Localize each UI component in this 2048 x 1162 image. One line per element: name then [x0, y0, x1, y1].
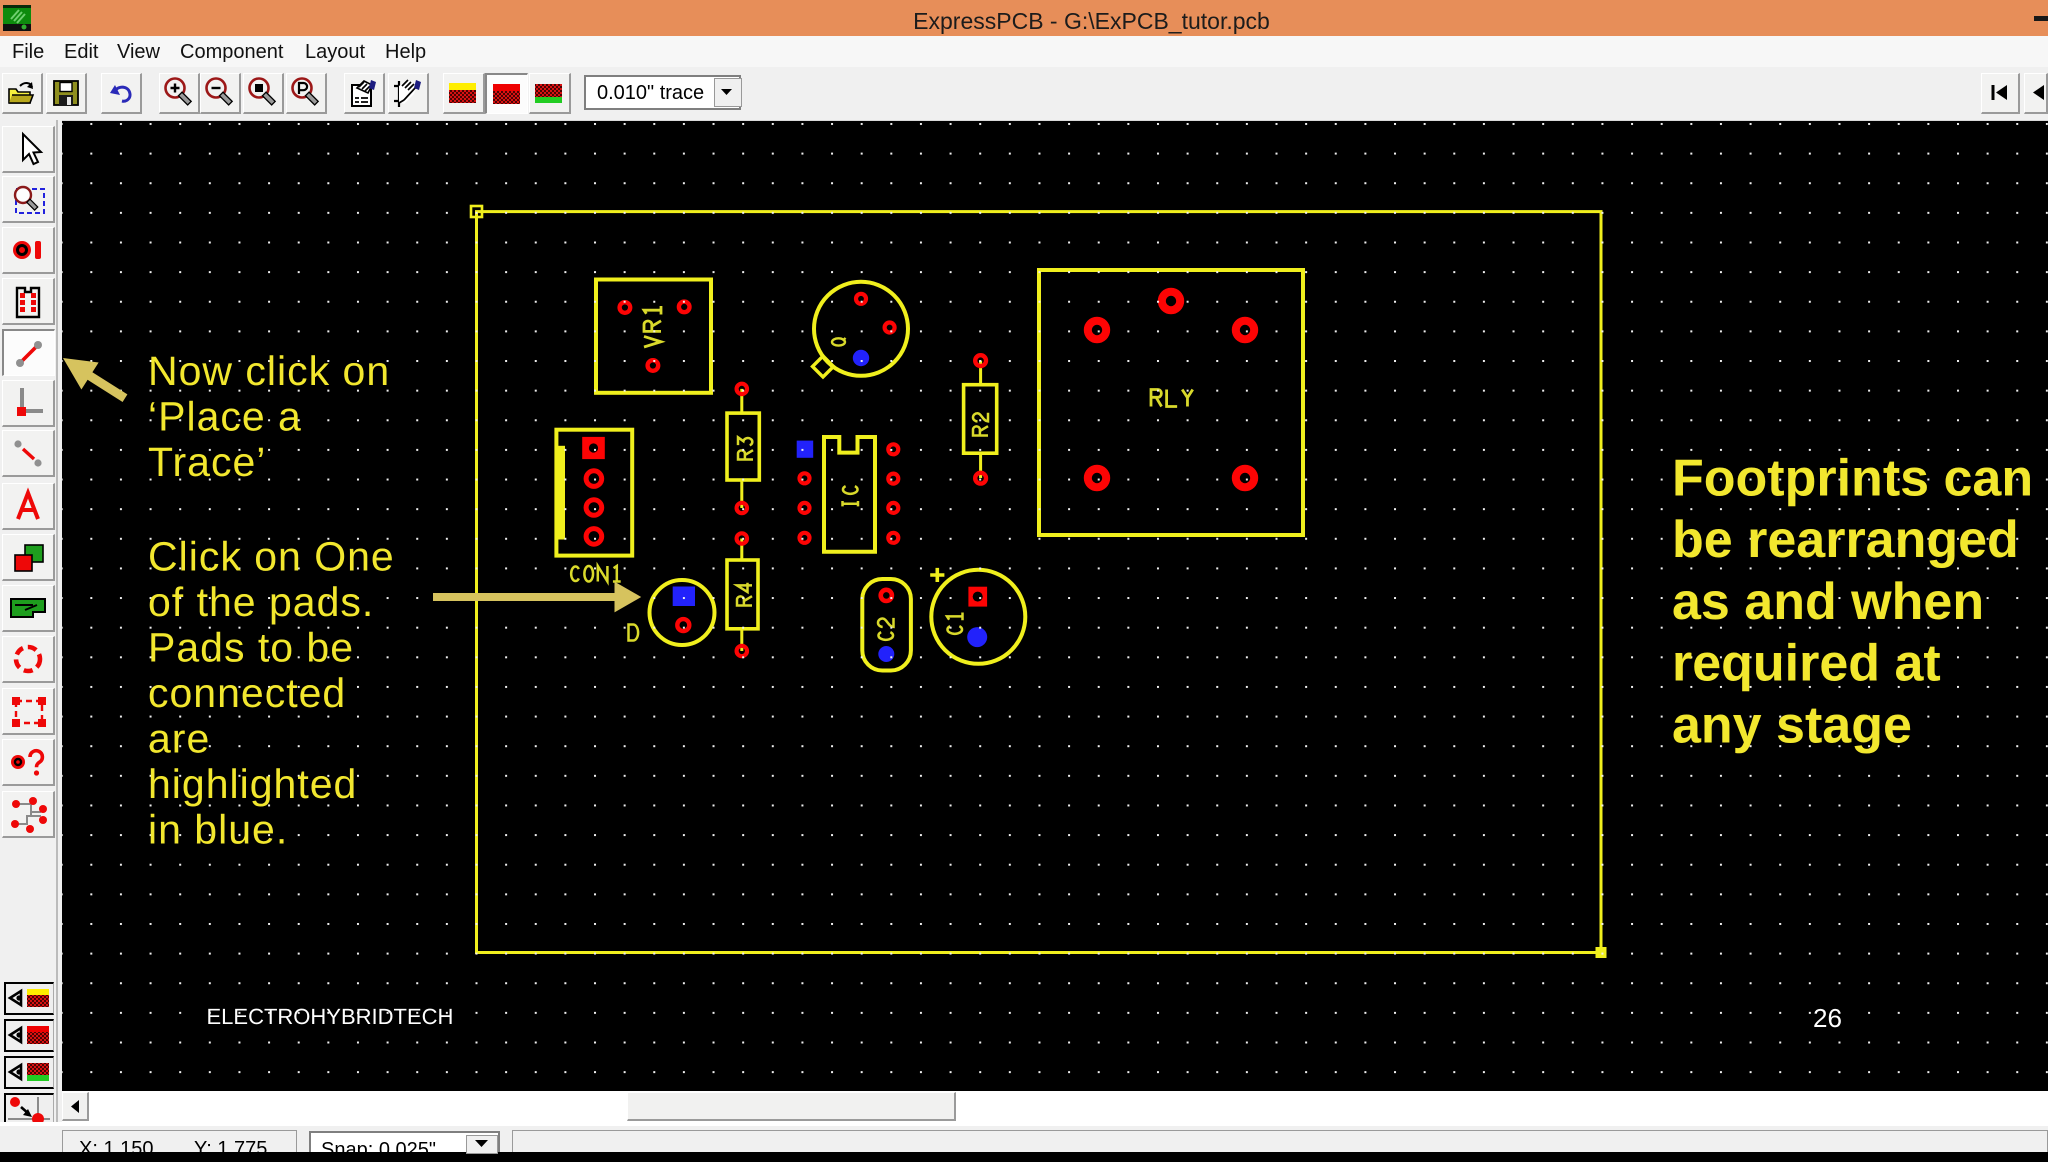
svg-text:Now click on: Now click on — [148, 348, 390, 394]
svg-text:26: 26 — [1813, 1003, 1842, 1033]
svg-text:as and when: as and when — [1672, 573, 1984, 631]
svg-text:‘Place a: ‘Place a — [148, 394, 302, 440]
svg-text:Trace’: Trace’ — [148, 439, 266, 485]
svg-text:of the pads.: of the pads. — [148, 579, 374, 625]
svg-text:highlighted: highlighted — [148, 761, 357, 807]
svg-text:Footprints can: Footprints can — [1672, 450, 2033, 508]
svg-text:connected: connected — [148, 670, 346, 716]
svg-text:Click on One: Click on One — [148, 534, 395, 580]
svg-text:be rearranged: be rearranged — [1672, 511, 2019, 569]
svg-text:Pads to be: Pads to be — [148, 625, 354, 671]
svg-text:any stage: any stage — [1672, 696, 1912, 754]
svg-text:in blue.: in blue. — [148, 807, 288, 853]
svg-text:required at: required at — [1672, 635, 1941, 693]
svg-text:ELECTROHYBRIDTECH: ELECTROHYBRIDTECH — [207, 1004, 454, 1029]
svg-text:are: are — [148, 716, 210, 762]
